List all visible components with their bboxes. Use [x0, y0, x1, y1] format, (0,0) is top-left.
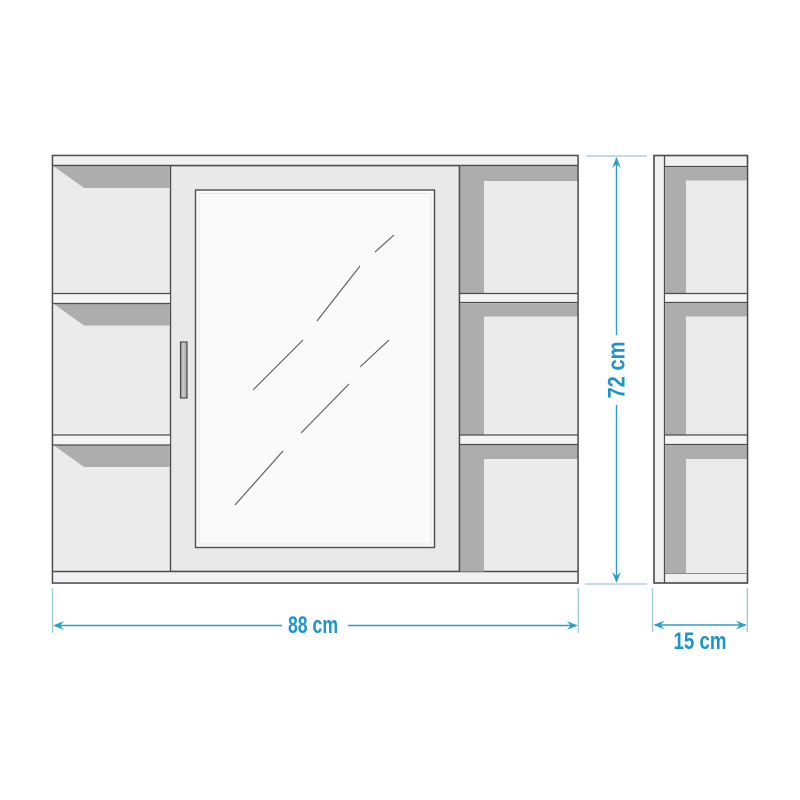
svg-text:15 cm: 15 cm [674, 628, 727, 655]
svg-text:88 cm: 88 cm [288, 612, 338, 639]
svg-text:72 cm: 72 cm [604, 342, 631, 399]
